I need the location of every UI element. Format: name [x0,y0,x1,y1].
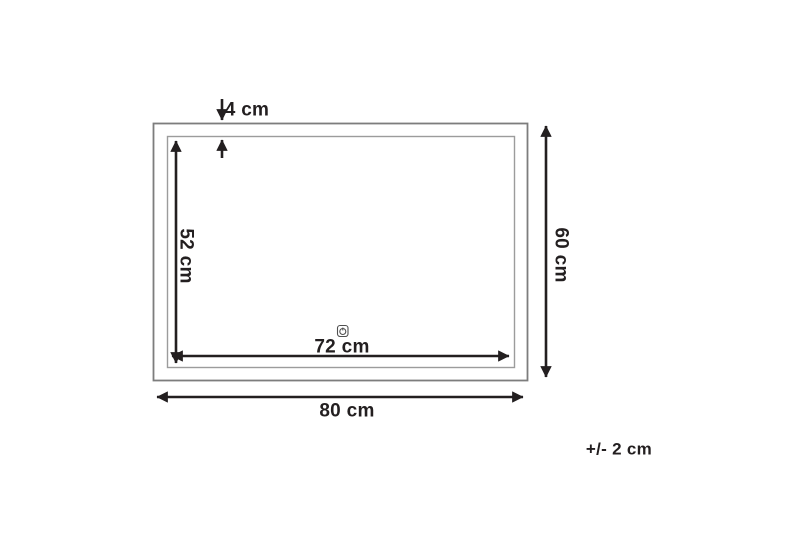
frame-border-label: 4 cm [225,101,270,120]
dimension-diagram: 4 cm 52 cm 72 cm 60 cm 80 cm +/- 2 cm [0,0,800,533]
diagram-canvas [0,0,800,533]
mirror-inner-frame [168,137,515,368]
inner-height-label: 52 cm [177,228,196,283]
outer-height-label: 60 cm [552,227,571,282]
outer-width-label: 80 cm [319,402,374,421]
inner-width-label: 72 cm [314,338,369,357]
touch-sensor-icon [338,326,349,337]
tolerance-note: +/- 2 cm [586,441,652,458]
